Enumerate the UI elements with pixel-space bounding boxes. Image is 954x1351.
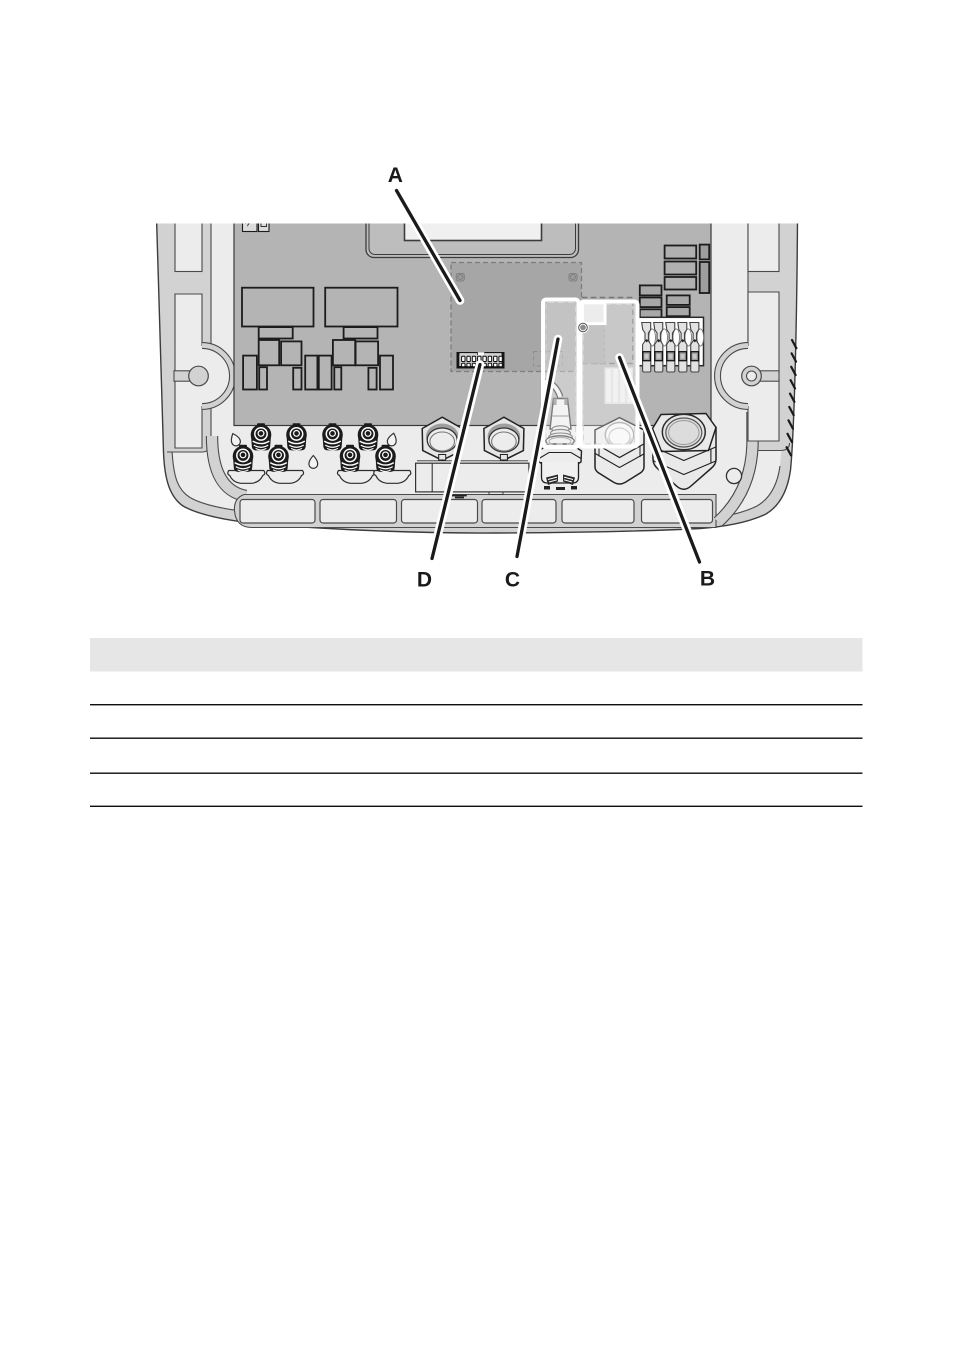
svg-text:A: A: [388, 164, 403, 187]
svg-text:B: B: [700, 568, 715, 591]
svg-text:D: D: [417, 569, 432, 592]
svg-text:C: C: [505, 569, 520, 592]
